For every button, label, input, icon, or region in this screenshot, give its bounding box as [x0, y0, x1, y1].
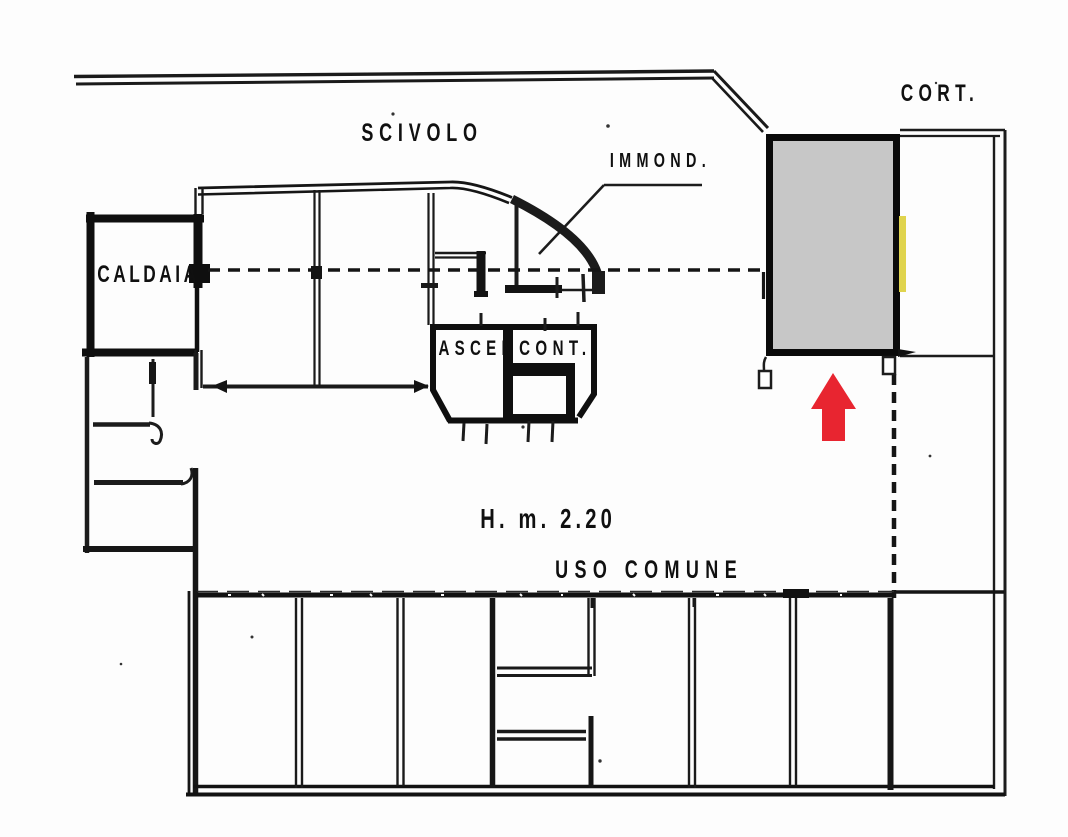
svg-text:SCIVOLO: SCIVOLO	[361, 118, 482, 147]
svg-text:H. m. 2.20: H. m. 2.20	[480, 504, 616, 535]
svg-text:CONT.: CONT.	[519, 335, 591, 359]
svg-text:CORT.: CORT.	[901, 80, 979, 106]
svg-text:IMMOND.: IMMOND.	[610, 149, 711, 172]
svg-text:CALDAIA: CALDAIA	[97, 261, 199, 287]
svg-text:USO COMUNE: USO COMUNE	[555, 555, 743, 584]
svg-text:ASCEN: ASCEN	[438, 335, 517, 359]
